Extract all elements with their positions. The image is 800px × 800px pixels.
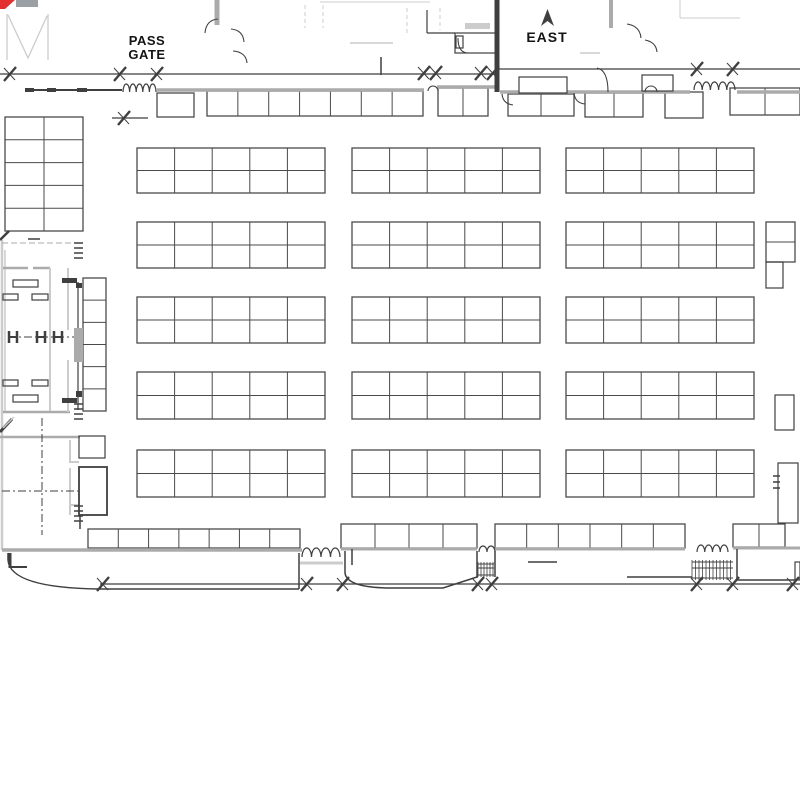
wall-line xyxy=(0,231,9,240)
floor-plan-page: PASS GATE EAST xyxy=(0,0,800,800)
door-swing-arc xyxy=(428,86,438,91)
fixture-block xyxy=(62,278,77,283)
door-swing-arc xyxy=(597,68,608,92)
expansion-joint-spring xyxy=(694,82,735,90)
fixture-block xyxy=(77,88,87,92)
fixture-block xyxy=(16,0,38,7)
fixture-block xyxy=(76,391,82,397)
door-swing-arc xyxy=(231,29,244,42)
room-rect xyxy=(13,395,38,402)
fixture-block xyxy=(47,88,56,92)
fixture-block xyxy=(465,23,490,29)
east-label: EAST xyxy=(524,29,570,45)
room-rect xyxy=(79,467,107,515)
room-rect xyxy=(32,380,48,386)
room-rect xyxy=(519,77,567,93)
pass-gate-label: PASS GATE xyxy=(124,34,170,62)
pass-gate-label-line2: GATE xyxy=(128,47,165,62)
expansion-joint-spring xyxy=(302,548,340,557)
room-rect xyxy=(778,463,798,523)
room-rect xyxy=(79,436,105,458)
east-direction-arrow-icon xyxy=(541,9,554,26)
wall-line xyxy=(3,417,14,428)
room-rect xyxy=(13,280,38,287)
room-rect xyxy=(32,294,48,300)
door-swing-arc xyxy=(574,93,585,104)
booth-grid xyxy=(207,91,423,116)
booth-grid xyxy=(88,529,300,548)
fixture-block xyxy=(62,398,77,403)
fixture-block xyxy=(25,88,34,92)
room-rect xyxy=(775,395,794,430)
door-swing-arc xyxy=(627,24,641,38)
expansion-joint-spring xyxy=(697,545,728,552)
expansion-joint-spring xyxy=(123,84,156,92)
door-swing-arc xyxy=(233,51,247,63)
booth-grid xyxy=(157,93,194,117)
pass-gate-label-line1: PASS xyxy=(129,33,165,48)
building-outline xyxy=(345,573,477,588)
expansion-joint-spring xyxy=(479,546,495,552)
booth-grid xyxy=(665,92,703,118)
building-outline xyxy=(7,14,48,60)
exhibit-hall-floor-plan xyxy=(0,0,800,800)
fixture-block xyxy=(76,283,82,288)
room-rect xyxy=(766,262,783,288)
logo-fragment-red xyxy=(0,0,15,9)
fixture-block xyxy=(74,328,83,362)
door-swing-arc xyxy=(645,40,657,52)
